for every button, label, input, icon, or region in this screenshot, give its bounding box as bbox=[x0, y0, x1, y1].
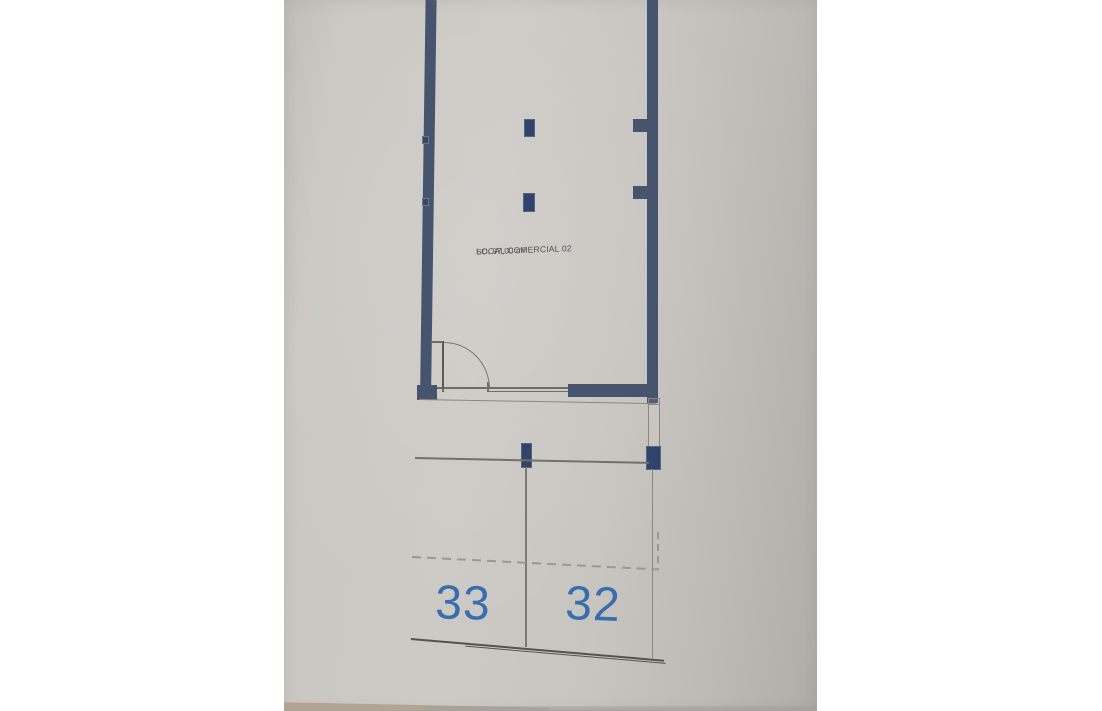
parking-divider-line bbox=[525, 467, 527, 647]
parking-column-right bbox=[646, 446, 661, 470]
parking-dashed-line-vertical bbox=[657, 532, 659, 570]
parking-space-number-32: 32 bbox=[558, 580, 628, 630]
duct-shaft-tick bbox=[648, 404, 660, 405]
door-hinge-tick bbox=[431, 341, 443, 343]
parking-bottom-boundary-line-double bbox=[465, 646, 665, 664]
room-area: SC: 97,00 m² bbox=[476, 246, 526, 257]
storefront-line-lower bbox=[487, 391, 568, 392]
left-wall-joint-lower bbox=[422, 198, 429, 206]
parking-space-number-33: 33 bbox=[427, 579, 498, 629]
left-wall-joint-upper bbox=[422, 136, 429, 144]
room-bottom-wall bbox=[568, 384, 648, 397]
door-swing-arc bbox=[444, 342, 490, 389]
right-wall-pilaster-upper bbox=[633, 119, 648, 132]
exterior-sidewalk-line bbox=[419, 399, 656, 404]
room-bottom-left-wall-foot bbox=[417, 385, 437, 400]
photo-bottom-shadow bbox=[424, 706, 817, 711]
right-wall-pilaster-lower bbox=[633, 186, 648, 199]
parking-right-boundary-line bbox=[652, 469, 653, 658]
parking-bottom-boundary-line bbox=[411, 638, 664, 662]
room-right-wall bbox=[647, 0, 658, 403]
room-label: LOCAL COMERCIAL 02 SC: 97,00 m² bbox=[476, 242, 621, 247]
interior-column-lower bbox=[523, 193, 535, 212]
floor-plan-photo: LOCAL COMERCIAL 02 SC: 97,00 m² 33 32 bbox=[284, 0, 817, 711]
parking-dashed-line-horizontal bbox=[412, 556, 659, 570]
interior-column-upper bbox=[524, 119, 535, 137]
parking-column-middle bbox=[521, 443, 532, 468]
duct-shaft-outline bbox=[648, 398, 660, 448]
